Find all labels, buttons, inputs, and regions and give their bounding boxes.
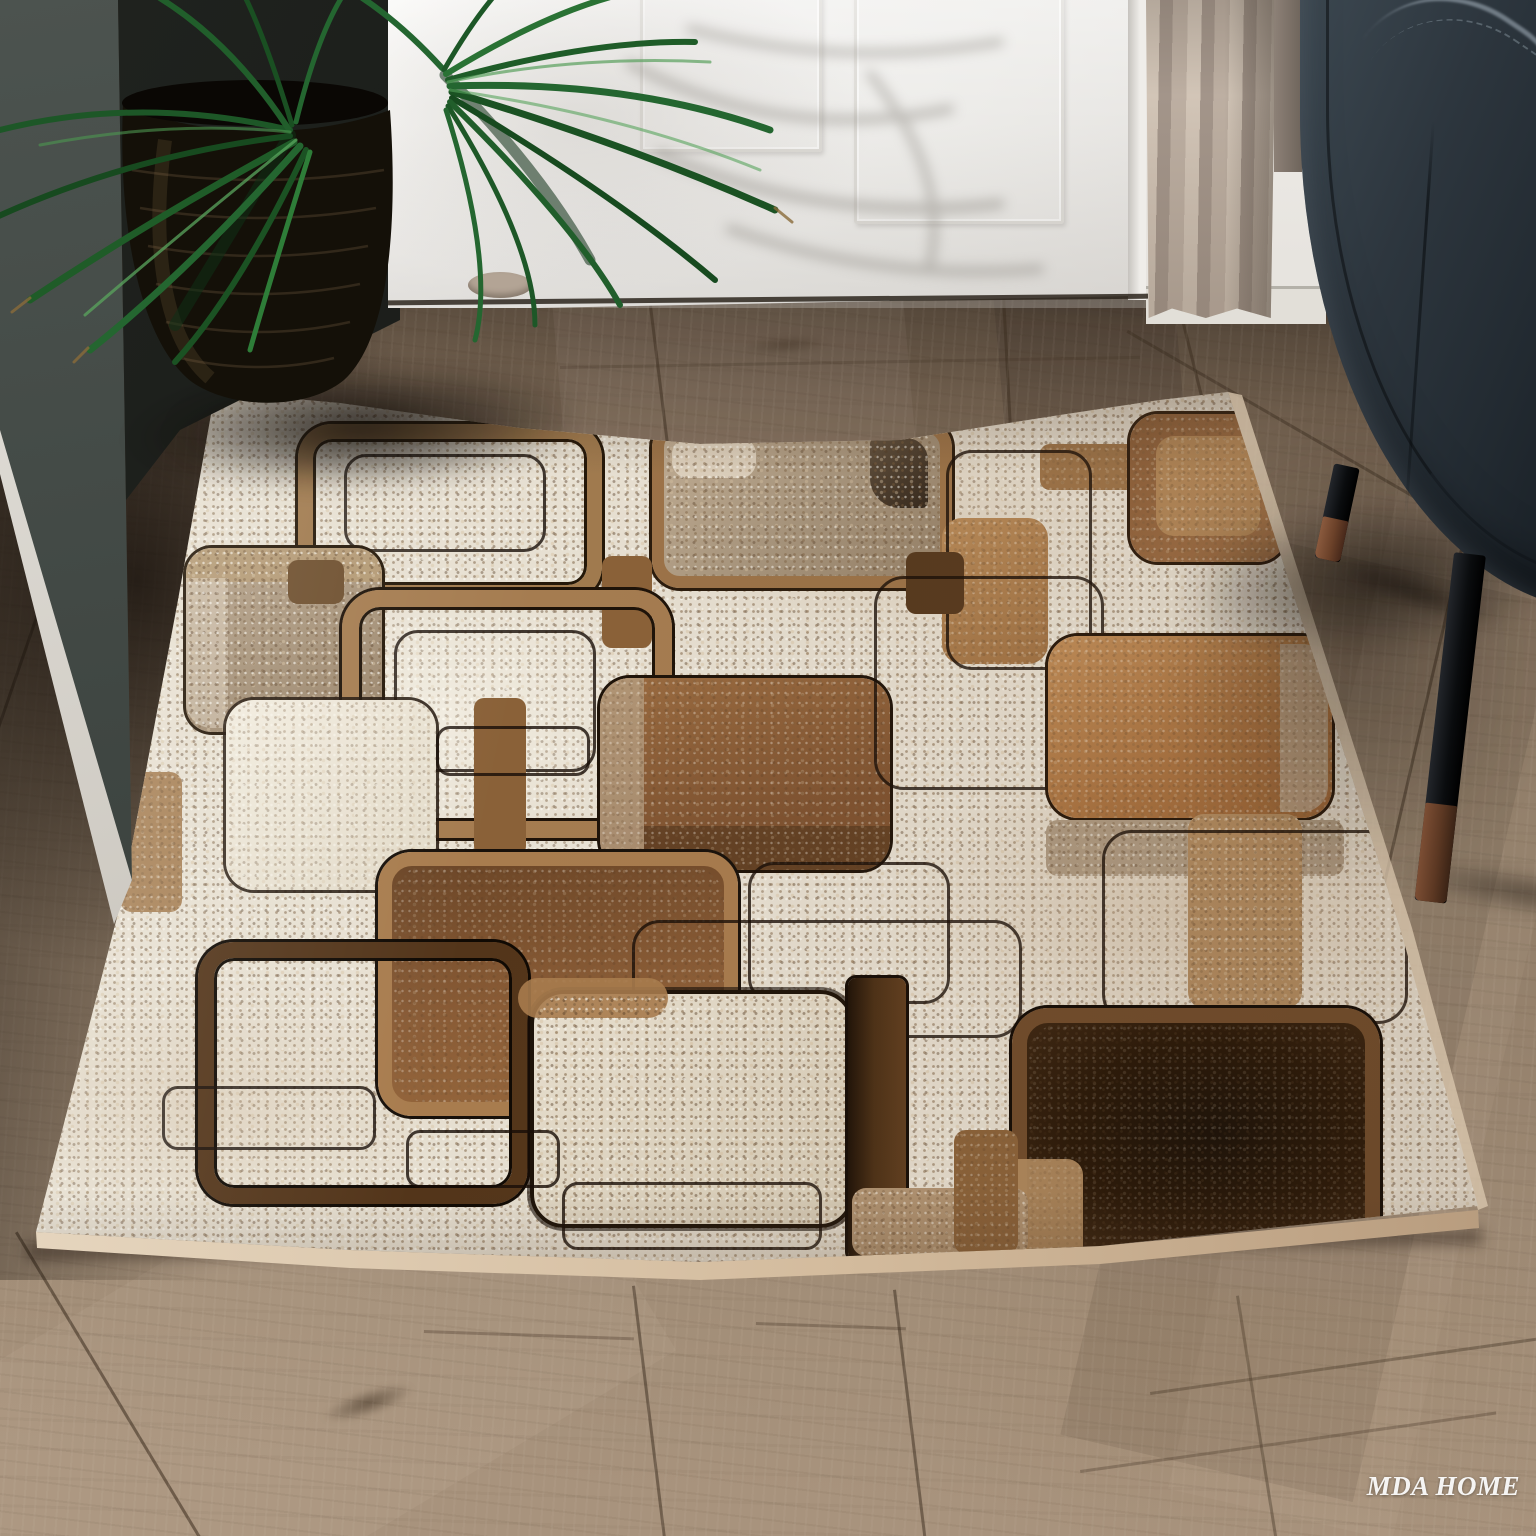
brand-watermark: MDA HOME bbox=[1367, 1471, 1520, 1502]
room-scene: MDA HOME bbox=[0, 0, 1536, 1536]
door-frame bbox=[1128, 0, 1148, 300]
potted-palm-plant bbox=[0, 0, 940, 450]
curtain-right-fold bbox=[1274, 0, 1302, 172]
palm-leaves bbox=[0, 0, 792, 362]
curtain-right bbox=[1146, 0, 1276, 318]
